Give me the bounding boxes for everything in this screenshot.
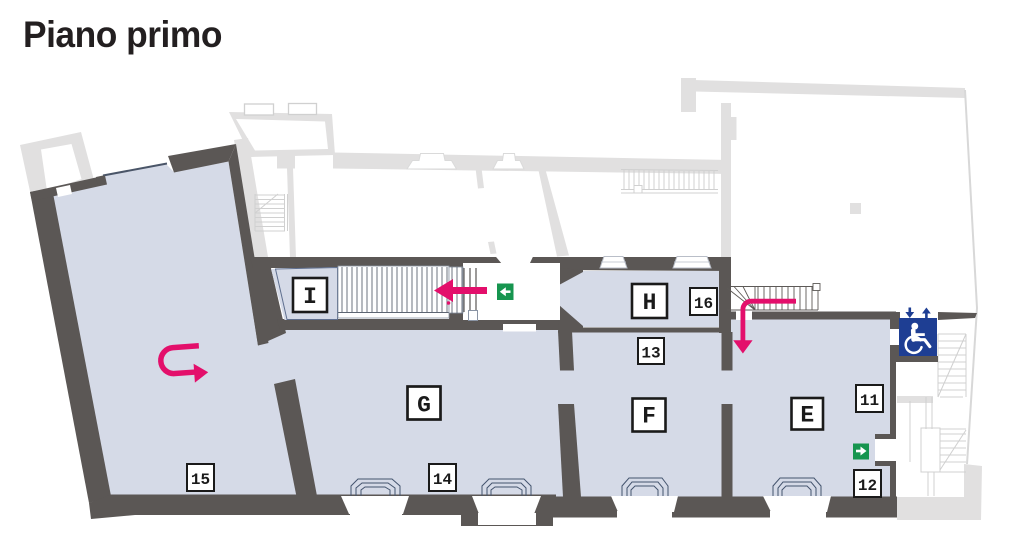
svg-text:15: 15 <box>191 471 210 489</box>
svg-text:16: 16 <box>694 295 713 313</box>
svg-text:I: I <box>303 284 317 310</box>
svg-text:13: 13 <box>641 345 660 363</box>
svg-text:14: 14 <box>433 471 453 489</box>
svg-text:E: E <box>800 403 814 429</box>
svg-text:11: 11 <box>860 392 879 410</box>
svg-text:G: G <box>417 393 431 419</box>
svg-text:H: H <box>643 290 657 316</box>
svg-text:12: 12 <box>858 477 877 495</box>
svg-text:F: F <box>642 404 656 430</box>
